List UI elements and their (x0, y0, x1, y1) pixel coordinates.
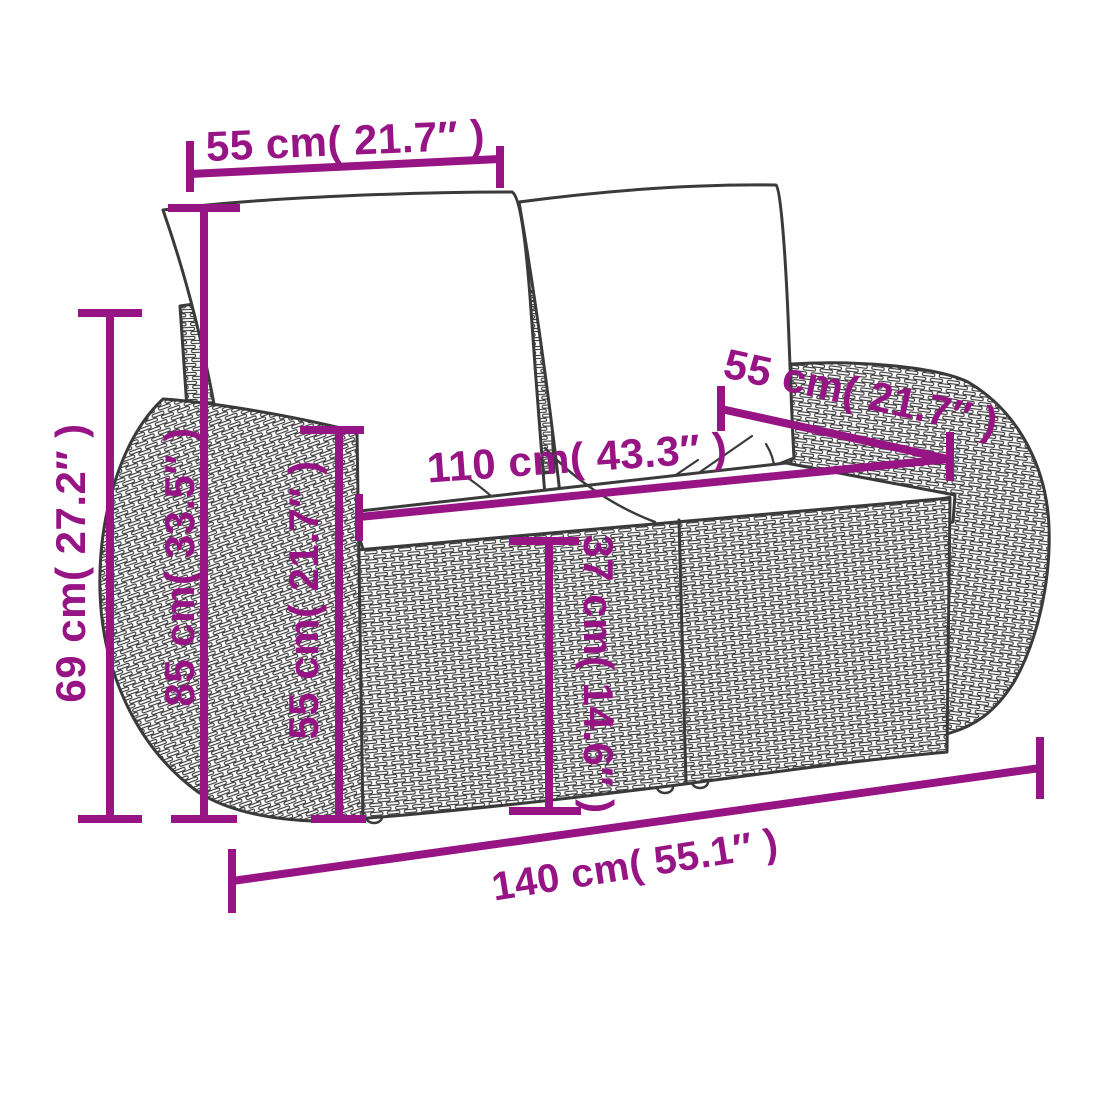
dim-backrest-width: 55 cm( 21.7″ ) (190, 111, 500, 192)
dim-armrest-height-label: 55 cm( 21.7″ ) (280, 460, 327, 739)
dim-seat-height-label: 37 cm( 14.6″ ) (575, 534, 622, 813)
dimension-diagram-page: 55 cm( 21.7″ ) 85 cm( 33.5″ ) 69 cm( 27.… (0, 0, 1100, 1100)
sofa-dimension-diagram: 55 cm( 21.7″ ) 85 cm( 33.5″ ) 69 cm( 27.… (0, 0, 1100, 1100)
dim-total-width-label: 140 cm( 55.1″ ) (489, 821, 781, 910)
dim-side-height-label: 69 cm( 27.2″ ) (47, 423, 94, 702)
dim-back-height-label: 85 cm( 33.5″ ) (156, 427, 203, 706)
seat-front-panel (341, 498, 950, 820)
sofa-drawing (100, 185, 1049, 823)
